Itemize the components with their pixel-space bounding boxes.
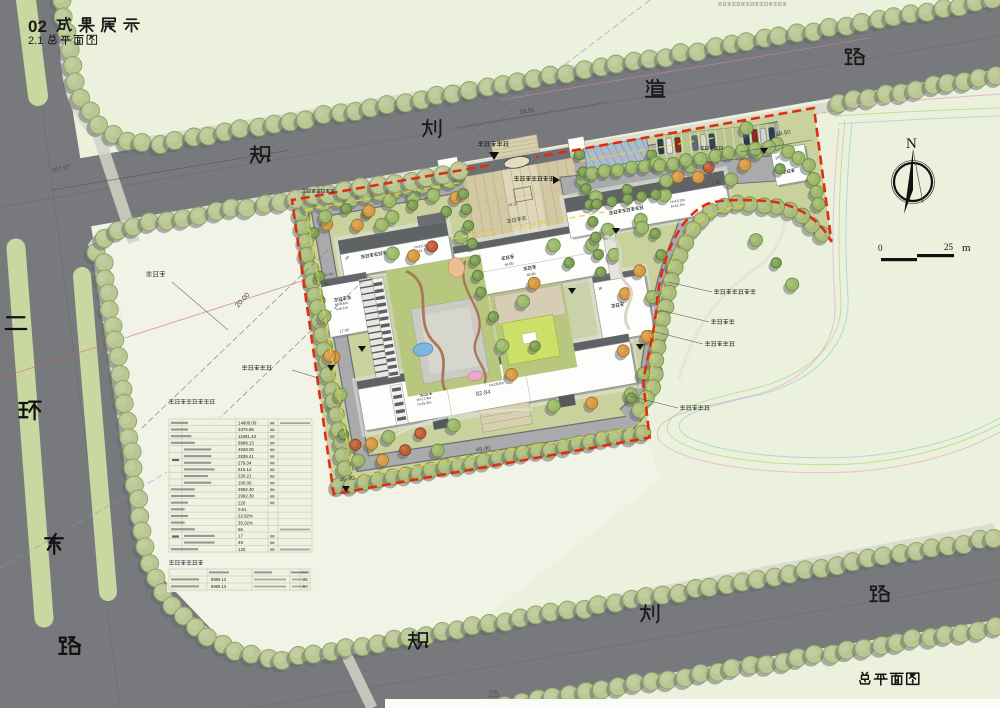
svg-text:2992.30: 2992.30 <box>238 487 254 492</box>
svg-text:11981.43: 11981.43 <box>238 434 257 439</box>
svg-text:N: N <box>906 136 917 152</box>
svg-text:m: m <box>962 242 971 254</box>
svg-text:36: 36 <box>303 577 308 582</box>
svg-text:0: 0 <box>878 243 883 253</box>
svg-text:17: 17 <box>238 534 243 539</box>
svg-text:22.82%: 22.82% <box>238 514 253 519</box>
svg-text:2.1: 2.1 <box>28 35 43 47</box>
svg-text:4928.05: 4928.05 <box>238 447 254 452</box>
svg-text:226.21: 226.21 <box>238 474 252 479</box>
svg-text:120: 120 <box>238 547 246 552</box>
svg-text:90: 90 <box>303 584 308 589</box>
svg-text:35.02%: 35.02% <box>238 520 253 525</box>
svg-text:100.00: 100.00 <box>238 480 252 485</box>
svg-text:8989.13: 8989.13 <box>211 584 227 589</box>
svg-text:8989.13: 8989.13 <box>211 577 227 582</box>
svg-text:0.61: 0.61 <box>238 507 247 512</box>
svg-text:3376.95: 3376.95 <box>238 427 254 432</box>
svg-text:02: 02 <box>28 17 47 36</box>
svg-text:616.12: 616.12 <box>238 467 252 472</box>
svg-text:8989.13: 8989.13 <box>238 440 254 445</box>
svg-text:25: 25 <box>944 242 954 252</box>
svg-text:25: 25 <box>488 689 500 700</box>
svg-text:49: 49 <box>238 540 243 545</box>
svg-text:14800.00: 14800.00 <box>238 421 257 426</box>
svg-text:2992.30: 2992.30 <box>238 494 254 499</box>
svg-text:2839.41: 2839.41 <box>238 454 254 459</box>
svg-text:220: 220 <box>238 500 246 505</box>
svg-text:66: 66 <box>238 527 243 532</box>
svg-text:279.34: 279.34 <box>238 460 252 465</box>
